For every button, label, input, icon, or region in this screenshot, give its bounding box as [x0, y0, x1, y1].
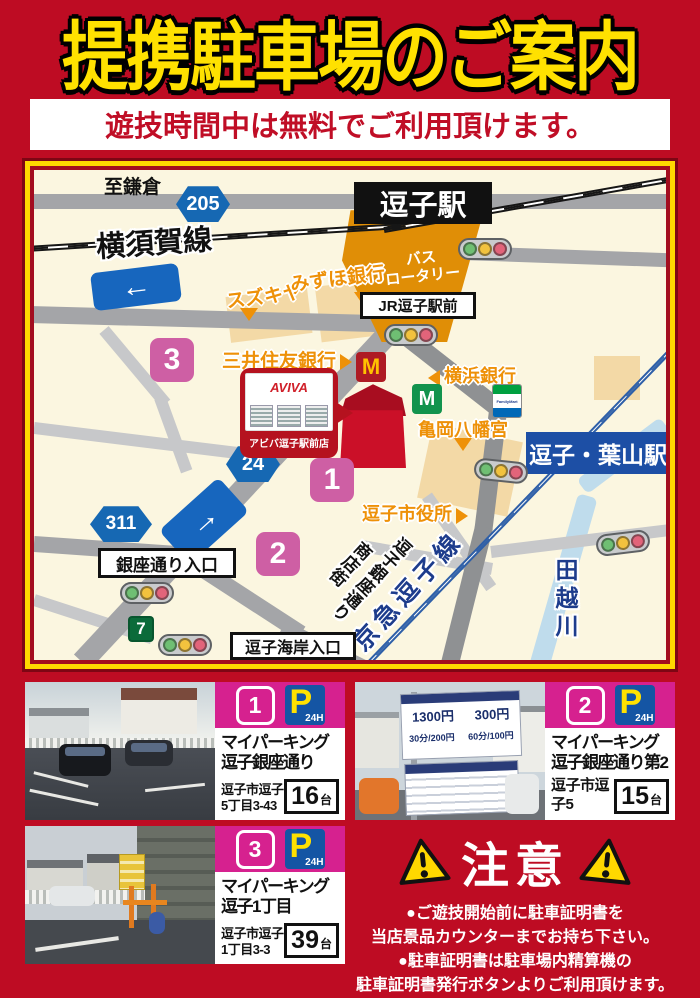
- aviva-store-name: アビバ逗子駅前店: [245, 435, 333, 450]
- parking-24h-sign: P 24H: [285, 829, 325, 869]
- jr-zushi-ekimae-label: JR逗子駅前: [360, 292, 476, 319]
- poi-pointer-icon: [340, 354, 352, 370]
- parking-number-badge: 2: [566, 686, 605, 725]
- map-parking-badge-3: 3: [150, 338, 194, 382]
- zushi-hayama-station-label: 逗子・葉山駅: [526, 432, 670, 474]
- parking-photo-2: 1300円 300円 30分/200円 60分/100円: [355, 682, 545, 820]
- sign-price-row: 1300円 300円: [401, 703, 520, 726]
- parking-card-body: マイパーキング 逗子銀座通り 逗子市逗子 5丁目3-43 16 台: [215, 728, 345, 820]
- car-window: [131, 743, 167, 752]
- parking-card-body: マイパーキング 逗子銀座通り第2 逗子市逗子5 15 台: [545, 728, 675, 820]
- notice-section: 注意 ●ご遊技開始前に駐車証明書を 当店景品カウンターまでお持ち下さい。 ●駐車…: [355, 826, 675, 998]
- tagoe-river-label: 田越川: [548, 558, 582, 642]
- subtitle-banner: 遊技時間中は無料でご利用頂けます。: [30, 99, 670, 150]
- parking-card-header: 1 P 24H: [215, 682, 345, 728]
- parking-name: マイパーキング 逗子銀座通り第2: [551, 733, 669, 773]
- parking-photo-1: [25, 682, 215, 820]
- photo-road: [25, 920, 215, 964]
- parking-24h-sign: P 24H: [285, 685, 325, 725]
- parking-cards: 1 P 24H マイパーキング 逗子銀座通り 逗子市逗子 5丁目3-43: [25, 682, 675, 998]
- parking-address: 逗子市逗子 1丁目3-3: [221, 926, 284, 959]
- traffic-light: [158, 634, 212, 656]
- aviva-shutters: [250, 405, 328, 427]
- aviva-store-callout: AVIVA アビバ逗子駅前店: [240, 368, 338, 458]
- map: 至鎌倉 205 横須賀線 逗子駅 バス ロータリー JR逗子駅前 銀座通り入口 …: [30, 166, 670, 664]
- notice-title-row: 注意: [397, 826, 633, 896]
- mcdonalds-icon: M: [356, 352, 386, 382]
- photo-car-orange: [359, 778, 399, 814]
- parking-card-2: 1300円 300円 30分/200円 60分/100円 2 P 24H: [355, 682, 675, 820]
- photo-blue-bin: [149, 912, 165, 934]
- familymart-icon: FamilyMart: [492, 384, 522, 418]
- warning-icon: [395, 836, 452, 887]
- poi-pointer-icon: [456, 508, 468, 524]
- parking-name: マイパーキング 逗子銀座通り: [221, 733, 339, 773]
- sign-price-row: 30分/200円 60分/100円: [402, 728, 520, 745]
- to-kamakura-label: 至鎌倉: [104, 172, 161, 199]
- photo-building: [137, 826, 215, 930]
- parking-address: 逗子市逗子 5丁目3-43: [221, 782, 284, 815]
- aviva-logo: AVIVA: [246, 380, 332, 395]
- callout-pointer-icon: [336, 402, 353, 424]
- traffic-light: [595, 529, 651, 557]
- photo-yellow-sign: [119, 854, 145, 890]
- kaigan-entrance-label: 逗子海岸入口: [230, 632, 356, 660]
- familymart-blue-stripe: [493, 408, 521, 417]
- photo-car: [59, 744, 111, 776]
- pachinko-hall-building: [340, 384, 406, 468]
- parking-card-1: 1 P 24H マイパーキング 逗子銀座通り 逗子市逗子 5丁目3-43: [25, 682, 345, 820]
- traffic-light: [384, 324, 438, 346]
- parking-number-badge: 3: [236, 830, 275, 869]
- familymart-green-stripe: [493, 385, 521, 394]
- map-parking-badge-1: 1: [310, 458, 354, 502]
- address-row: 逗子市逗子 1丁目3-3 39 台: [221, 923, 339, 958]
- rules-signboard: [404, 760, 520, 816]
- parking-card-header: 3 P 24H: [215, 826, 345, 872]
- mos-burger-icon: M: [412, 384, 442, 414]
- aviva-storefront-illustration: AVIVA: [245, 373, 333, 431]
- photo-van: [505, 774, 539, 814]
- route-311-badge: 311: [90, 506, 152, 542]
- sign-header: [405, 761, 517, 774]
- traffic-light: [120, 582, 174, 604]
- price-signboard: 1300円 300円 30分/200円 60分/100円: [400, 690, 522, 760]
- parking-24h-sign: P 24H: [615, 685, 655, 725]
- building-block: [594, 356, 640, 400]
- orange-pole: [129, 886, 134, 928]
- map-parking-badge-2: 2: [256, 532, 300, 576]
- photo-house: [121, 688, 197, 734]
- notice-title: 注意: [461, 826, 569, 896]
- car-window: [65, 747, 105, 756]
- address-row: 逗子市逗子 5丁目3-43 16 台: [221, 779, 339, 814]
- capacity-box: 16 台: [284, 779, 339, 814]
- parking-address: 逗子市逗子5: [551, 777, 614, 815]
- sign-header: [401, 691, 519, 704]
- photo-car: [49, 886, 95, 906]
- poi-pointer-icon: [428, 370, 440, 386]
- map-frame: 至鎌倉 205 横須賀線 逗子駅 バス ロータリー JR逗子駅前 銀座通り入口 …: [22, 158, 678, 672]
- orange-bar: [123, 900, 167, 905]
- traffic-light: [458, 238, 512, 260]
- parking-card-3: 3 P 24H マイパーキング 逗子1丁目 逗子市逗子 1丁目3-3: [25, 826, 345, 964]
- seven-eleven-icon: 7: [128, 616, 154, 642]
- yokosuka-line-label: 横須賀線: [95, 216, 214, 266]
- poi-pointer-icon: [454, 438, 472, 451]
- left-arrow-sign: ←: [90, 263, 182, 311]
- parking-card-body: マイパーキング 逗子1丁目 逗子市逗子 1丁目3-3 39 台: [215, 872, 345, 964]
- parking-card-header: 2 P 24H: [545, 682, 675, 728]
- parking-info-2: 2 P 24H マイパーキング 逗子銀座通り第2 逗子市逗子5 15: [545, 682, 675, 820]
- zushi-station-label: 逗子駅: [354, 182, 492, 224]
- page-title: 提携駐車場のご案内: [0, 0, 700, 97]
- parking-number-badge: 1: [236, 686, 275, 725]
- capacity-box: 39 台: [284, 923, 339, 958]
- photo-house: [355, 712, 399, 768]
- photo-car: [125, 740, 173, 766]
- parking-photo-3: [25, 826, 215, 964]
- parking-info-3: 3 P 24H マイパーキング 逗子1丁目 逗子市逗子 1丁目3-3: [215, 826, 345, 964]
- notice-text: ●ご遊技開始前に駐車証明書を 当店景品カウンターまでお持ち下さい。 ●駐車証明書…: [356, 902, 674, 998]
- parking-name: マイパーキング 逗子1丁目: [221, 877, 339, 917]
- address-row: 逗子市逗子5 15 台: [551, 777, 669, 815]
- ginza-entrance-label: 銀座通り入口: [98, 548, 236, 578]
- warning-icon: [579, 836, 636, 887]
- parking-info-1: 1 P 24H マイパーキング 逗子銀座通り 逗子市逗子 5丁目3-43: [215, 682, 345, 820]
- capacity-box: 15 台: [614, 779, 669, 814]
- poi-pointer-icon: [240, 308, 258, 321]
